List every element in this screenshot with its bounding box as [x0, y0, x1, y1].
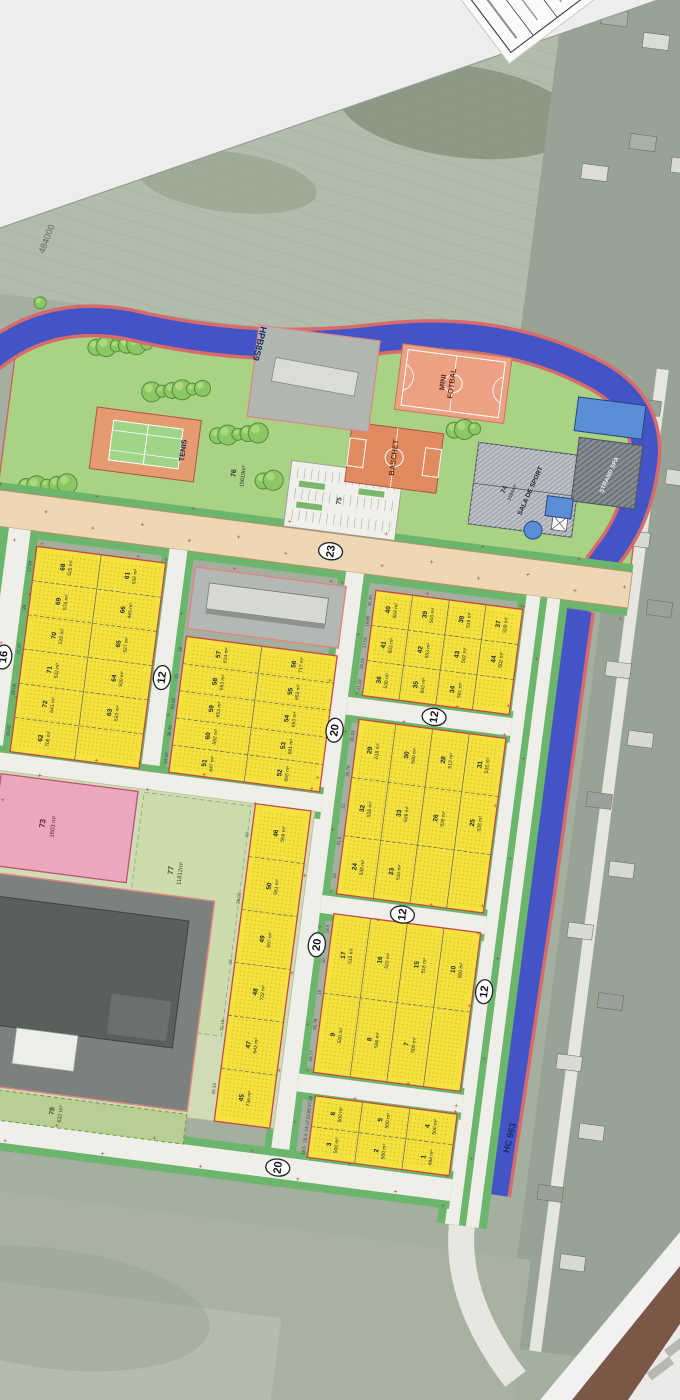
- parcel-number: 60: [204, 732, 212, 740]
- road-badge-number: 12: [396, 908, 409, 922]
- verge-cross-marker: +: [384, 531, 389, 538]
- parcel-number: 66: [119, 605, 127, 613]
- parcel-number: 37: [495, 620, 503, 628]
- parcel-number: 64: [111, 674, 119, 682]
- verge-cross-marker: +: [521, 603, 526, 610]
- parcel-73-number: 73: [38, 818, 48, 829]
- village-building: [597, 992, 624, 1010]
- village-building: [556, 1054, 583, 1072]
- road-badge-number: 20: [311, 938, 324, 952]
- road-badge-number: 20: [272, 1161, 285, 1175]
- parcel-number: 38: [458, 615, 466, 623]
- road-badge-number: 12: [428, 710, 441, 724]
- road-badge-number: 12: [156, 671, 169, 685]
- parcel-number: 57: [215, 650, 223, 658]
- parcel-number: 62: [37, 734, 45, 742]
- verge-cross-marker: +: [152, 1135, 157, 1142]
- parcel-number: 39: [421, 610, 429, 618]
- parcel-number: 40: [385, 605, 393, 613]
- parcel-number: 26: [432, 814, 440, 822]
- parcel-number: 28: [440, 755, 448, 763]
- parcel-number: 69: [55, 597, 63, 605]
- parcel-number: 32: [359, 804, 367, 812]
- village-building: [608, 861, 635, 879]
- village-building: [559, 1254, 586, 1272]
- parcel-number: 52: [276, 768, 284, 776]
- parcel-number: 55: [287, 687, 295, 695]
- parcel-number: 58: [211, 677, 219, 685]
- parcel-number: 70: [50, 631, 58, 639]
- parcel-number: 16: [376, 956, 384, 964]
- village-building: [627, 730, 654, 748]
- parcel-number: 17: [340, 951, 348, 959]
- parcel-number: 36: [375, 676, 383, 684]
- verge-cross-marker: +: [380, 563, 385, 570]
- existing-building-parcel-park: [247, 325, 380, 432]
- parcel-number: 29: [366, 746, 374, 754]
- parcel-number: 51: [201, 759, 209, 767]
- parcel-number: 42: [417, 645, 425, 653]
- verge-cross-marker: +: [136, 553, 141, 560]
- verge-cross-marker: +: [393, 1189, 398, 1196]
- parcel-number: 34: [449, 685, 457, 693]
- parcel-77-number: 77: [166, 866, 176, 875]
- parcel-number: 30: [403, 751, 411, 759]
- parcel-number: 65: [115, 640, 123, 648]
- verge-cross-marker: +: [140, 522, 145, 529]
- parcel-number: 25: [469, 818, 477, 826]
- parcel-number: 72: [42, 700, 50, 708]
- parcel-number: 45: [238, 1093, 246, 1101]
- parcel-number: 41: [380, 640, 388, 648]
- parcel-number: 10: [450, 965, 458, 973]
- village-building: [629, 133, 657, 151]
- parcel-78-number: 78: [49, 1107, 57, 1116]
- parcel-number: 53: [280, 741, 288, 749]
- parcel-number: 15: [413, 960, 421, 968]
- map-sheet: 68528 m²61532 m²69576 m²66465 m²70520 m²…: [0, 0, 680, 1400]
- village-building: [665, 469, 680, 487]
- parcel-75-number: 75: [336, 497, 344, 505]
- parcel-number: 43: [453, 650, 461, 658]
- village-building: [642, 32, 670, 50]
- parcel-number: 24: [351, 862, 359, 870]
- parcel-number: 33: [395, 809, 403, 817]
- parcel-number: 48: [252, 988, 260, 996]
- village-building: [605, 661, 632, 679]
- road-badge-number: 20: [328, 723, 341, 737]
- parcel-number: 50: [266, 882, 274, 890]
- parcel-number: 35: [412, 680, 420, 688]
- parcel-73-pink: [0, 774, 138, 883]
- road-badge-number: 16: [0, 650, 10, 664]
- parcel-number: 54: [283, 714, 291, 722]
- parcel-number: 31: [476, 760, 484, 768]
- parcel-number: 47: [245, 1040, 253, 1048]
- parcel-number: 63: [106, 708, 114, 716]
- parcel-number: 49: [259, 935, 267, 943]
- parcel-number: 56: [290, 660, 298, 668]
- parcel-number: 23: [388, 867, 396, 875]
- parcel-number: 46: [272, 829, 280, 837]
- village-building: [578, 1123, 605, 1141]
- road-badge-number: 12: [478, 985, 491, 999]
- existing-industrial-parcel: [0, 871, 215, 1111]
- village-building: [646, 600, 673, 618]
- parcel-number: 59: [208, 704, 216, 712]
- verge-cross-marker: +: [525, 572, 530, 579]
- parcel-number: 44: [490, 655, 498, 663]
- road-badge-number: 23: [324, 544, 337, 558]
- village-building: [581, 163, 609, 181]
- scene-svg: 68528 m²61532 m²69576 m²66465 m²70520 m²…: [0, 0, 680, 1400]
- village-building: [586, 791, 613, 809]
- village-building: [567, 922, 594, 940]
- parcel-number: 71: [46, 665, 54, 673]
- village-building: [537, 1184, 564, 1202]
- parcel-number: 61: [124, 571, 132, 579]
- sports-hall-building: [468, 442, 582, 537]
- map-photo: 68528 m²61532 m²69576 m²66465 m²70520 m²…: [0, 0, 680, 1400]
- parcel-76-number: 76: [230, 469, 238, 478]
- parcel-number: 68: [59, 563, 67, 571]
